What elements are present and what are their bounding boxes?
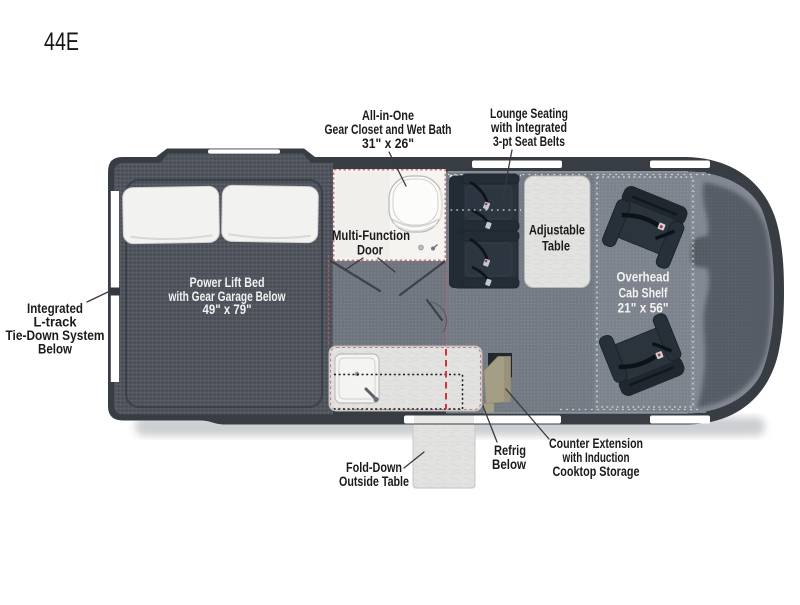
- svg-text:Outside Table: Outside Table: [339, 473, 409, 489]
- svg-text:Below: Below: [492, 456, 526, 472]
- svg-text:Door: Door: [357, 242, 383, 258]
- svg-text:Overhead: Overhead: [617, 270, 670, 285]
- svg-text:Table: Table: [542, 238, 570, 254]
- svg-text:Below: Below: [38, 341, 72, 357]
- svg-text:Adjustable: Adjustable: [529, 222, 585, 238]
- svg-text:21" x 56": 21" x 56": [618, 301, 669, 316]
- svg-text:3-pt Seat Belts: 3-pt Seat Belts: [493, 133, 565, 149]
- svg-text:31" x 26": 31" x 26": [362, 135, 414, 151]
- svg-text:Cooktop Storage: Cooktop Storage: [553, 463, 640, 479]
- svg-text:44E: 44E: [44, 28, 79, 56]
- svg-text:Power Lift Bed: Power Lift Bed: [190, 275, 265, 290]
- svg-text:Cab Shelf: Cab Shelf: [619, 286, 668, 301]
- svg-text:49" x 79": 49" x 79": [203, 302, 252, 317]
